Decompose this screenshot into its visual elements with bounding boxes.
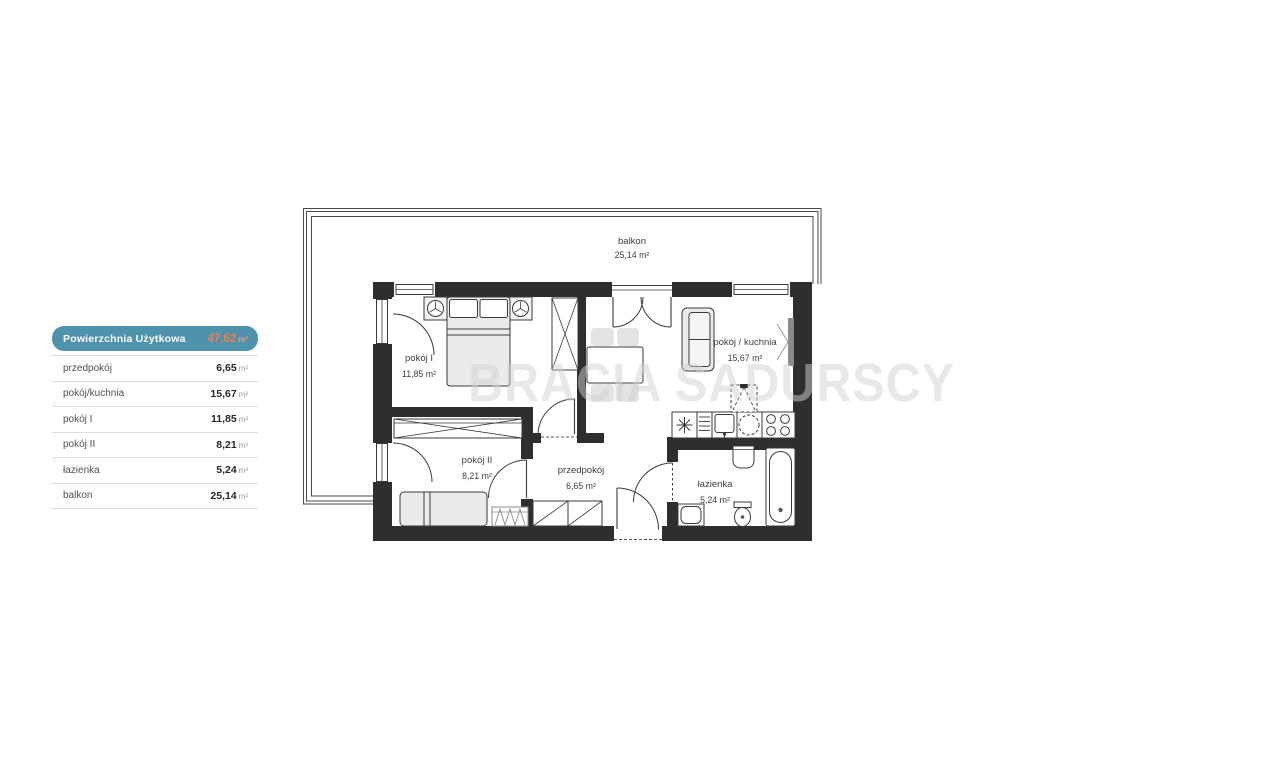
label-balkon: balkon: [618, 236, 646, 247]
label-pokoj2: pokój II: [462, 455, 493, 466]
double-bed-icon: [447, 297, 510, 386]
washing-machine-icon: [678, 504, 704, 526]
area-przedpokoj: 6,65 m²: [566, 481, 596, 491]
lazienka-furniture: [678, 446, 795, 527]
pokoj2-furniture: [394, 419, 528, 526]
label-przedpokoj: przedpokój: [558, 465, 604, 476]
door-pokoj1: [538, 399, 577, 443]
pokoj1-furniture: [424, 297, 578, 386]
nightstand-right-icon: [509, 297, 532, 320]
area-pokoj1: 11,85 m²: [402, 369, 436, 379]
bathtub-icon: [766, 448, 795, 526]
door-pokoj2: [489, 459, 534, 499]
kuchnia-furniture: [587, 308, 795, 438]
floorplan-page: Powierzchnia Użytkowa 47,62m² przedpokój…: [0, 0, 1280, 765]
floor-plan: balkon 25,14 m² pokój I 11,85 m² pokój /…: [0, 0, 1280, 765]
fridge-slot-dashed-icon: [731, 384, 757, 412]
wardrobe-pokoj2-icon: [394, 419, 522, 438]
przedpokoj-furniture: [533, 501, 602, 526]
bath-sink-icon: [733, 446, 754, 468]
window-top-right: [732, 282, 790, 297]
area-pokoj2: 8,21 m²: [462, 471, 492, 481]
tv-icon: [777, 318, 794, 366]
desk-chair-hatch-icon: [492, 507, 528, 526]
kitchen-counter: [672, 412, 795, 438]
area-balkon: 25,14 m²: [615, 250, 650, 260]
area-kuchnia: 15,67 m²: [728, 353, 763, 363]
door-lazienka: [634, 462, 679, 502]
wardrobe-pokoj1-icon: [552, 298, 578, 370]
hall-wardrobe-icon: [533, 501, 602, 526]
balcony-french-door: [612, 282, 672, 327]
area-lazienka: 5,24 m²: [700, 495, 730, 505]
label-kuchnia: pokój / kuchnia: [713, 337, 777, 348]
sofa-icon: [682, 308, 714, 371]
nightstand-left-icon: [424, 297, 447, 320]
label-pokoj1: pokój I: [405, 353, 433, 364]
round-basin-icon: [739, 415, 759, 435]
label-lazienka: łazienka: [698, 479, 734, 490]
balcony-door-pokoj2: [373, 443, 432, 482]
single-bed-icon: [400, 492, 487, 526]
entrance-door: [614, 488, 662, 541]
window-top-left: [394, 282, 435, 297]
toilet-icon: [734, 502, 751, 527]
dining-table-icon: [587, 347, 643, 383]
